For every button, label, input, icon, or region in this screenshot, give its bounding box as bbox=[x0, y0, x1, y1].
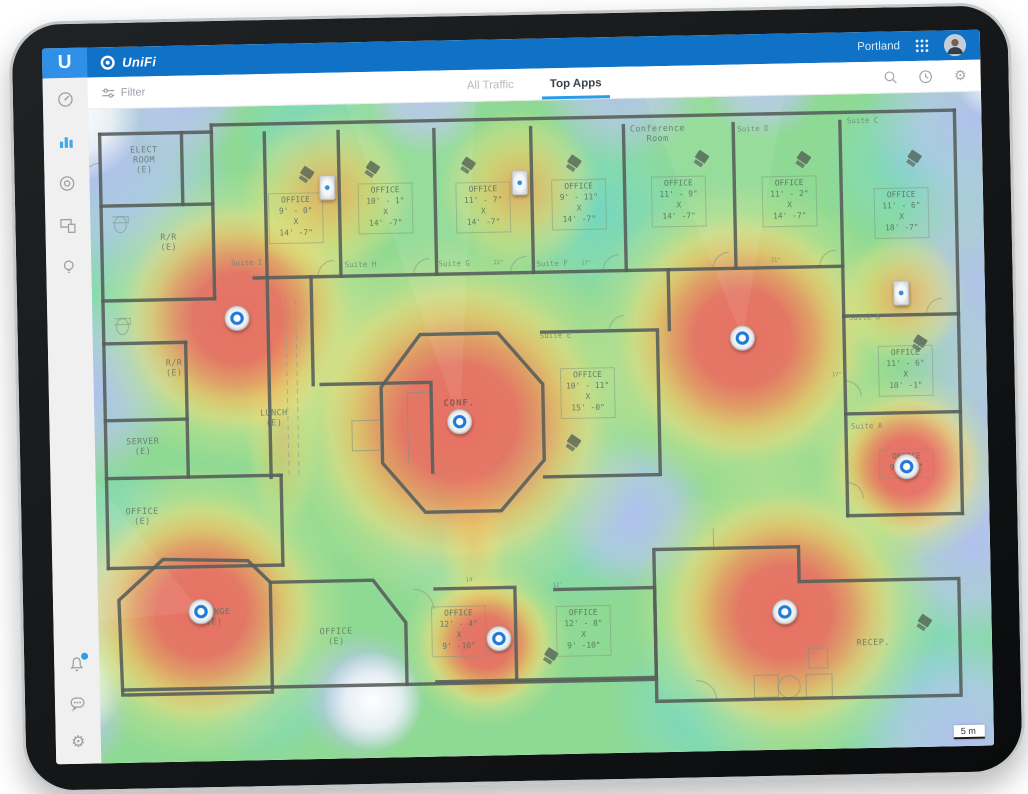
room-label: SERVER bbox=[126, 436, 160, 447]
product-name: UniFi bbox=[122, 54, 156, 70]
office-dim-label: OFFICE bbox=[444, 608, 473, 618]
room-label: Conference bbox=[630, 123, 685, 134]
tab-top-apps[interactable]: Top Apps bbox=[550, 67, 602, 99]
sidebar-item-insights[interactable] bbox=[60, 259, 77, 276]
dimension-tick: 21" bbox=[771, 257, 781, 263]
screens-icon bbox=[59, 217, 76, 234]
room-label: (E) bbox=[135, 446, 152, 456]
sidebar-item-clients[interactable] bbox=[59, 217, 76, 234]
office-dim-label: X bbox=[293, 217, 298, 226]
access-point[interactable] bbox=[447, 409, 471, 433]
wall bbox=[103, 299, 215, 301]
office-dim-label: 12' - 4" bbox=[439, 619, 478, 629]
office-dim-label: X bbox=[577, 203, 582, 212]
filter-label: Filter bbox=[121, 86, 146, 98]
suite-label: Suite I bbox=[231, 258, 263, 268]
room-label: (E) bbox=[266, 417, 283, 427]
office-dim-label: 9' -10" bbox=[567, 641, 601, 651]
room-label: ROOM bbox=[133, 154, 155, 164]
office-dim-label: 14' -7" bbox=[562, 214, 596, 224]
speedometer-icon bbox=[57, 91, 74, 108]
office-dim-label: X bbox=[787, 200, 792, 209]
office-dim-label: OFFICE bbox=[775, 178, 804, 188]
site-selector[interactable]: Portland bbox=[857, 40, 900, 53]
avatar[interactable] bbox=[944, 34, 966, 56]
office-dim-label: OFFICE bbox=[569, 608, 598, 618]
app-screen: U UniFi Portland bbox=[42, 30, 994, 765]
heatmap-canvas[interactable]: ELECTROOM(E)R/R(E)R/R(E)SERVER(E)OFFICE(… bbox=[88, 92, 994, 764]
sidebar-item-alerts[interactable] bbox=[68, 656, 85, 673]
office-dim-label: OFFICE bbox=[573, 370, 602, 380]
office-dim-label: X bbox=[903, 370, 908, 379]
office-dim-label: OFFICE bbox=[887, 190, 916, 200]
office-dim-label: 11' - 9" bbox=[659, 189, 698, 199]
wall-access-point[interactable] bbox=[893, 281, 908, 305]
room-label: R/R bbox=[160, 232, 177, 242]
sidebar-item-devices[interactable] bbox=[58, 175, 75, 192]
wall bbox=[181, 133, 182, 205]
office-dim-label: X bbox=[456, 630, 461, 639]
bar-chart-icon bbox=[58, 133, 75, 150]
wall-access-point[interactable] bbox=[512, 171, 527, 195]
office-dim-label: 14' -7" bbox=[662, 211, 696, 221]
office-dim-label: X bbox=[899, 212, 904, 221]
office-dim-label: OFFICE bbox=[891, 348, 920, 358]
wall bbox=[668, 270, 669, 330]
lightbulb-icon bbox=[60, 259, 77, 276]
room-label: RECEP. bbox=[857, 637, 890, 648]
office-dim-label: 10' - 11" bbox=[566, 381, 609, 391]
wall bbox=[311, 277, 313, 385]
office-dim-label: OFFICE bbox=[371, 185, 400, 195]
dimension-tick: 17" bbox=[581, 260, 591, 266]
apps-grid-icon[interactable] bbox=[915, 39, 929, 53]
room-label: OFFICE bbox=[320, 626, 353, 637]
sidebar-item-chat[interactable] bbox=[69, 695, 86, 712]
sidebar-item-settings[interactable]: ⚙ bbox=[71, 734, 86, 750]
wall bbox=[846, 412, 961, 414]
room-label: (E) bbox=[136, 164, 153, 174]
office-dim-label: 11' - 6" bbox=[886, 358, 925, 368]
office-dim-label: 14' -7" bbox=[369, 218, 403, 228]
office-dim-label: OFFICE bbox=[468, 184, 497, 194]
access-point[interactable] bbox=[189, 599, 213, 623]
room-label: (E) bbox=[166, 367, 183, 377]
dimension-tick: 17" bbox=[832, 372, 842, 378]
office-dim-label: 12' - 8" bbox=[564, 619, 603, 629]
room-label: ELECT bbox=[130, 144, 158, 155]
suite-label: Suite A bbox=[851, 421, 883, 431]
suite-label: Suite C bbox=[847, 116, 879, 126]
target-icon bbox=[58, 175, 75, 192]
suite-label: Suite F bbox=[536, 259, 568, 269]
office-dim-label: 11' - 2" bbox=[770, 189, 809, 199]
suite-label: Suite G bbox=[438, 259, 470, 269]
office-dim-label: 11' - 7" bbox=[464, 195, 503, 205]
sidebar-item-dashboard[interactable] bbox=[57, 91, 74, 108]
map-scale: 5 m bbox=[954, 725, 985, 740]
access-point[interactable] bbox=[773, 600, 797, 624]
office-dim-label: OFFICE bbox=[664, 178, 693, 188]
ubiquiti-logo[interactable]: U bbox=[42, 48, 88, 79]
wall-access-point[interactable] bbox=[319, 176, 334, 200]
dimension-tick: 22" bbox=[493, 260, 503, 266]
room-label: (E) bbox=[160, 242, 177, 252]
access-point[interactable] bbox=[730, 326, 754, 350]
suite-label: Suite H bbox=[345, 260, 377, 270]
tab-all-traffic[interactable]: All Traffic bbox=[466, 69, 514, 101]
access-point[interactable] bbox=[894, 454, 918, 478]
access-point[interactable] bbox=[225, 306, 249, 330]
office-dim-label: OFFICE bbox=[564, 181, 593, 191]
room-label: LUNCH bbox=[260, 407, 288, 418]
office-dim-label: 10' -1" bbox=[889, 380, 923, 390]
office-dim-label: 18' -7" bbox=[885, 223, 919, 233]
office-dim-label: 10' - 1" bbox=[366, 196, 405, 206]
office-dim-label: OFFICE bbox=[281, 195, 310, 205]
room-label: R/R bbox=[166, 357, 183, 367]
conference-label: CONF. bbox=[443, 398, 475, 409]
office-dim-label: 14' -7" bbox=[279, 228, 313, 238]
room-label: (E) bbox=[328, 636, 345, 646]
tablet-device: U UniFi Portland bbox=[8, 2, 1025, 794]
wall bbox=[281, 475, 283, 565]
access-point[interactable] bbox=[487, 626, 511, 650]
gear-icon[interactable]: ⚙ bbox=[954, 67, 967, 83]
wall bbox=[848, 513, 963, 515]
office-dim-label: 9' -10" bbox=[442, 641, 476, 651]
office-dim-label: 11' - 6" bbox=[882, 201, 921, 211]
filter-icon bbox=[102, 87, 115, 99]
floorplan-svg: ELECTROOM(E)R/R(E)R/R(E)SERVER(E)OFFICE(… bbox=[88, 92, 994, 764]
clock-icon[interactable] bbox=[919, 69, 933, 83]
office-dim-label: X bbox=[383, 207, 388, 216]
office-dim-label: X bbox=[585, 392, 590, 401]
office-dim-label: X bbox=[581, 630, 586, 639]
office-dim-label: 9' - 11" bbox=[560, 192, 599, 202]
office-dim-label: X bbox=[676, 200, 681, 209]
office-dim-label: 9' - 0" bbox=[279, 206, 313, 216]
office-dim-label: 15' -0" bbox=[571, 403, 605, 413]
wall bbox=[104, 342, 186, 344]
sidebar-item-statistics[interactable] bbox=[58, 133, 75, 150]
suite-label: Suite B bbox=[849, 312, 881, 322]
wall bbox=[105, 419, 187, 421]
office-dim-label: 14' -7" bbox=[773, 211, 807, 221]
chat-bubble-icon bbox=[69, 695, 86, 712]
suite-label: Suite D bbox=[737, 124, 769, 134]
room-label: (E) bbox=[134, 516, 151, 526]
dimension-tick: 12' bbox=[553, 582, 563, 588]
wall bbox=[100, 132, 212, 134]
office-dim-label: 14' -7" bbox=[467, 217, 501, 227]
search-icon[interactable] bbox=[884, 70, 898, 84]
unifi-brand: UniFi bbox=[87, 54, 156, 70]
room-label: Room bbox=[646, 133, 668, 143]
unifi-logo-icon bbox=[100, 54, 115, 69]
wall bbox=[101, 204, 213, 206]
suite-label: Suite E bbox=[540, 331, 572, 341]
notification-badge bbox=[81, 653, 88, 660]
room-label: OFFICE bbox=[125, 506, 158, 517]
gear-icon: ⚙ bbox=[71, 732, 86, 751]
office-dim-label: X bbox=[481, 206, 486, 215]
dimension-tick: 14' bbox=[466, 577, 476, 583]
filter-button[interactable]: Filter bbox=[102, 86, 146, 99]
